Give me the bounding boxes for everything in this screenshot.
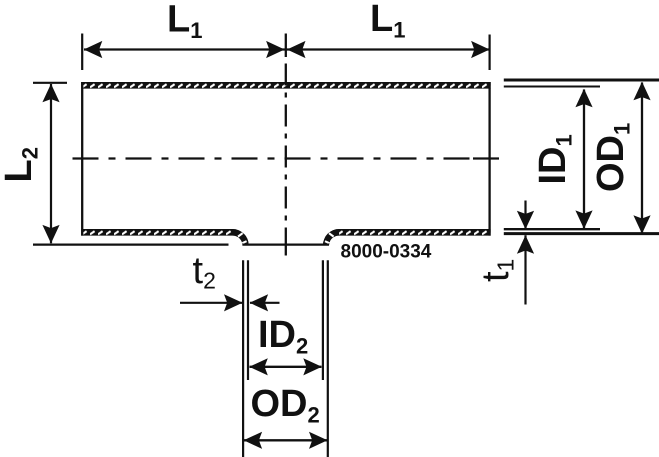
svg-text:8000-0334: 8000-0334 [341,242,432,263]
